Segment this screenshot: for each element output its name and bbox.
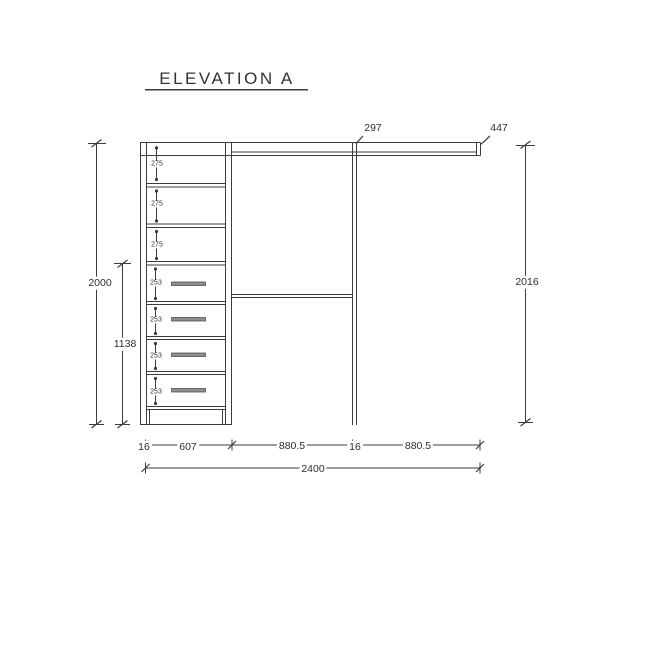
drawer-handle	[172, 318, 206, 322]
dim-label-1138: 1138	[112, 338, 139, 351]
plinth	[150, 410, 223, 425]
dim-label-2016: 2016	[513, 276, 540, 289]
drawer-spacing-label: 253	[149, 389, 163, 396]
drawing-title: ELEVATION A	[159, 69, 295, 89]
bottom-dim-label: 880.5	[403, 440, 433, 453]
dim-label-447: 447	[488, 122, 510, 135]
drawer-handle	[172, 282, 206, 286]
bottom-dim-label: 16	[347, 441, 363, 454]
dim-tick-slashes	[92, 140, 531, 473]
bottom-dim-label: 880.5	[277, 440, 307, 453]
bottom-dim-label: 607	[177, 441, 199, 454]
shelves	[147, 184, 226, 266]
vertical-partition	[353, 143, 357, 426]
shelf-spacing-label: 275	[150, 161, 164, 168]
total-width-label: 2400	[299, 463, 326, 476]
leader-line-447	[481, 136, 490, 144]
drawer-spacing-label: 253	[149, 353, 163, 360]
shelf-spacing-label: 275	[150, 242, 164, 249]
drawer-handle	[172, 353, 206, 357]
hanging-rail	[232, 295, 353, 298]
cabinet-carcass	[140, 90, 481, 426]
drawer-spacing-label: 253	[149, 317, 163, 324]
left-side-panel	[141, 143, 147, 426]
drawer-spacing-label: 253	[149, 280, 163, 287]
shelf-spacing-label: 275	[150, 201, 164, 208]
drawer-handle	[172, 389, 206, 393]
dim-label-297: 297	[362, 122, 384, 135]
right-side-panel	[226, 143, 232, 426]
top-shelf	[140, 143, 481, 156]
elevation-linework	[0, 0, 672, 672]
elevation-drawing-sheet: ELEVATION A 297 447 2000 1138 2016 275 2…	[0, 0, 672, 672]
dim-label-2000: 2000	[86, 277, 113, 290]
bottom-dim-label: 16	[136, 441, 152, 454]
